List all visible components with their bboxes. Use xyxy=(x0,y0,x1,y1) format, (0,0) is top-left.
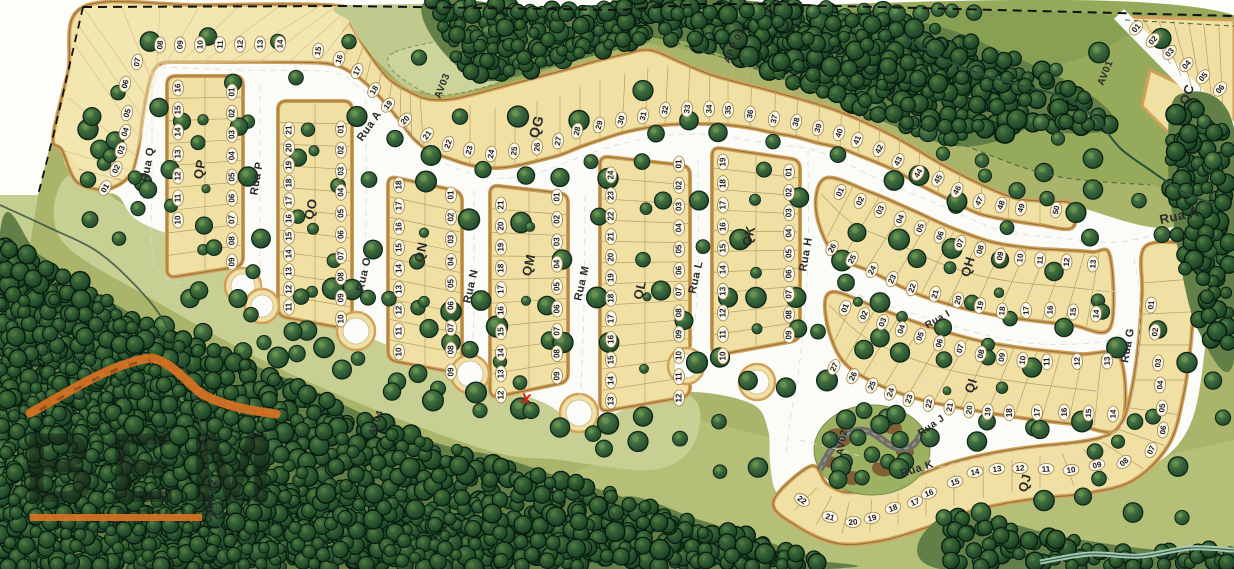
svg-text:15: 15 xyxy=(285,231,294,240)
svg-text:14: 14 xyxy=(285,249,294,258)
svg-text:01: 01 xyxy=(553,192,562,201)
svg-text:15: 15 xyxy=(607,355,616,364)
svg-text:01: 01 xyxy=(1146,300,1156,310)
svg-text:12: 12 xyxy=(1015,463,1025,473)
svg-text:10: 10 xyxy=(1018,355,1028,366)
svg-text:08: 08 xyxy=(447,345,456,354)
svg-text:17: 17 xyxy=(395,201,404,210)
svg-text:11: 11 xyxy=(216,40,225,49)
svg-text:16: 16 xyxy=(1060,407,1069,417)
svg-text:13: 13 xyxy=(1103,356,1112,366)
svg-text:16: 16 xyxy=(719,222,728,231)
svg-text:10: 10 xyxy=(1066,465,1077,475)
svg-text:09: 09 xyxy=(997,352,1007,363)
svg-text:18: 18 xyxy=(607,293,616,302)
svg-text:04: 04 xyxy=(785,228,794,237)
svg-text:14: 14 xyxy=(395,264,404,273)
svg-text:17: 17 xyxy=(1033,407,1042,417)
svg-text:15: 15 xyxy=(719,243,728,252)
svg-text:16: 16 xyxy=(174,83,183,92)
svg-text:09: 09 xyxy=(447,367,456,376)
svg-text:20: 20 xyxy=(964,404,974,414)
svg-text:05: 05 xyxy=(785,249,794,258)
svg-text:13: 13 xyxy=(285,267,294,276)
svg-text:02: 02 xyxy=(1150,327,1160,337)
svg-text:22: 22 xyxy=(607,211,616,220)
svg-text:08: 08 xyxy=(228,236,237,245)
svg-text:14: 14 xyxy=(607,376,616,385)
svg-text:02: 02 xyxy=(337,145,346,154)
svg-text:19: 19 xyxy=(719,157,728,166)
svg-text:04: 04 xyxy=(228,151,237,160)
svg-text:04: 04 xyxy=(337,187,346,196)
svg-text:36: 36 xyxy=(745,108,755,119)
svg-text:15: 15 xyxy=(1068,307,1078,317)
svg-text:02: 02 xyxy=(675,180,684,189)
svg-text:19: 19 xyxy=(607,273,616,282)
svg-text:04: 04 xyxy=(675,223,684,232)
svg-text:02: 02 xyxy=(785,187,794,196)
svg-text:01: 01 xyxy=(228,87,237,96)
svg-text:35: 35 xyxy=(724,105,733,115)
svg-text:13: 13 xyxy=(395,284,404,293)
svg-text:14: 14 xyxy=(1091,309,1101,319)
svg-text:03: 03 xyxy=(447,234,456,243)
svg-text:05: 05 xyxy=(447,279,456,288)
svg-text:19: 19 xyxy=(285,160,294,169)
svg-text:13: 13 xyxy=(992,464,1003,474)
svg-text:18: 18 xyxy=(395,180,404,189)
svg-text:08: 08 xyxy=(553,349,562,358)
svg-text:05: 05 xyxy=(337,208,346,217)
svg-text:05: 05 xyxy=(553,282,562,291)
svg-text:03: 03 xyxy=(675,202,684,211)
svg-text:10: 10 xyxy=(719,351,728,360)
svg-text:03: 03 xyxy=(337,166,346,175)
svg-text:07: 07 xyxy=(553,326,562,335)
svg-text:17: 17 xyxy=(1022,305,1031,315)
svg-text:12: 12 xyxy=(1073,356,1082,366)
svg-text:12: 12 xyxy=(395,305,404,314)
svg-text:11: 11 xyxy=(1043,357,1052,366)
svg-text:15: 15 xyxy=(1084,408,1093,418)
svg-text:06: 06 xyxy=(228,193,237,202)
svg-text:06: 06 xyxy=(447,301,456,310)
svg-text:26: 26 xyxy=(533,142,542,152)
svg-text:21: 21 xyxy=(285,125,294,134)
svg-text:03: 03 xyxy=(553,237,562,246)
svg-text:14: 14 xyxy=(276,39,285,49)
svg-text:05: 05 xyxy=(675,244,684,253)
svg-text:07: 07 xyxy=(228,215,237,224)
svg-text:25: 25 xyxy=(509,146,519,156)
svg-text:17: 17 xyxy=(719,200,728,209)
svg-text:18: 18 xyxy=(497,263,506,272)
svg-text:10: 10 xyxy=(337,314,346,323)
svg-text:09: 09 xyxy=(553,371,562,380)
svg-text:04: 04 xyxy=(553,259,562,268)
svg-text:17: 17 xyxy=(607,314,616,323)
svg-text:11: 11 xyxy=(395,326,404,335)
svg-text:09: 09 xyxy=(785,330,794,339)
svg-text:12: 12 xyxy=(1062,257,1072,267)
svg-text:12: 12 xyxy=(497,390,506,399)
svg-text:08: 08 xyxy=(675,308,684,317)
svg-text:11: 11 xyxy=(174,193,183,202)
svg-text:34: 34 xyxy=(705,104,714,114)
svg-text:10: 10 xyxy=(395,347,404,356)
svg-text:13: 13 xyxy=(497,369,506,378)
svg-text:20: 20 xyxy=(285,143,294,152)
svg-text:10: 10 xyxy=(174,215,183,224)
svg-text:18: 18 xyxy=(719,179,728,188)
svg-text:13: 13 xyxy=(256,39,265,49)
svg-text:10: 10 xyxy=(675,351,684,360)
svg-text:12: 12 xyxy=(236,39,245,49)
svg-text:19: 19 xyxy=(983,406,993,416)
svg-text:02: 02 xyxy=(228,108,237,117)
svg-text:14: 14 xyxy=(497,348,506,357)
svg-text:18: 18 xyxy=(997,306,1007,316)
svg-text:12: 12 xyxy=(675,393,684,402)
svg-text:12: 12 xyxy=(285,284,294,293)
svg-text:18: 18 xyxy=(1005,408,1014,417)
svg-text:01: 01 xyxy=(337,124,346,133)
svg-text:11: 11 xyxy=(1041,464,1051,474)
svg-text:16: 16 xyxy=(1046,305,1055,315)
svg-text:05: 05 xyxy=(1157,403,1167,413)
svg-text:09: 09 xyxy=(675,329,684,338)
svg-text:21: 21 xyxy=(497,200,506,209)
svg-text:13: 13 xyxy=(1088,259,1098,269)
svg-text:01: 01 xyxy=(675,159,684,168)
svg-text:18: 18 xyxy=(285,178,294,187)
svg-text:06: 06 xyxy=(785,269,794,278)
svg-text:21: 21 xyxy=(607,232,616,241)
svg-text:11: 11 xyxy=(719,330,728,339)
svg-text:12: 12 xyxy=(174,171,183,180)
svg-text:06: 06 xyxy=(675,265,684,274)
svg-text:07: 07 xyxy=(337,251,346,260)
svg-text:23: 23 xyxy=(607,191,616,200)
svg-text:15: 15 xyxy=(174,105,183,114)
svg-text:24: 24 xyxy=(607,170,616,179)
svg-text:09: 09 xyxy=(228,257,237,266)
svg-text:03: 03 xyxy=(785,208,794,217)
svg-text:06: 06 xyxy=(1158,424,1168,435)
svg-text:03: 03 xyxy=(1153,358,1163,368)
svg-text:09: 09 xyxy=(176,40,185,50)
svg-text:16: 16 xyxy=(395,222,404,231)
svg-text:13: 13 xyxy=(607,396,616,405)
svg-text:14: 14 xyxy=(174,127,183,136)
svg-text:11: 11 xyxy=(675,372,684,381)
svg-text:15: 15 xyxy=(497,327,506,336)
svg-text:19: 19 xyxy=(497,242,506,251)
svg-text:20: 20 xyxy=(848,517,858,527)
svg-text:20: 20 xyxy=(607,252,616,261)
svg-text:07: 07 xyxy=(447,323,456,332)
svg-text:13: 13 xyxy=(174,149,183,158)
svg-text:05: 05 xyxy=(228,172,237,181)
svg-text:15: 15 xyxy=(395,243,404,252)
svg-text:04: 04 xyxy=(1155,380,1165,390)
svg-text:07: 07 xyxy=(675,287,684,296)
svg-text:08: 08 xyxy=(156,40,165,50)
svg-text:14: 14 xyxy=(1109,409,1118,419)
svg-text:01: 01 xyxy=(447,190,456,199)
svg-text:20: 20 xyxy=(497,221,506,230)
svg-text:17: 17 xyxy=(497,284,506,293)
svg-text:17: 17 xyxy=(285,196,294,205)
svg-text:10: 10 xyxy=(1015,253,1025,263)
svg-text:11: 11 xyxy=(1035,255,1045,265)
svg-text:06: 06 xyxy=(337,230,346,239)
svg-text:16: 16 xyxy=(607,334,616,343)
svg-text:09: 09 xyxy=(337,293,346,302)
svg-text:02: 02 xyxy=(447,212,456,221)
svg-text:16: 16 xyxy=(285,214,294,223)
svg-text:12: 12 xyxy=(719,308,728,317)
svg-text:10: 10 xyxy=(196,40,205,50)
svg-text:07: 07 xyxy=(785,289,794,298)
svg-text:01: 01 xyxy=(785,167,794,176)
svg-text:03: 03 xyxy=(228,130,237,139)
svg-text:08: 08 xyxy=(785,310,794,319)
svg-text:06: 06 xyxy=(553,304,562,313)
svg-text:02: 02 xyxy=(553,214,562,223)
svg-text:14: 14 xyxy=(719,265,728,274)
svg-text:08: 08 xyxy=(337,272,346,281)
svg-text:33: 33 xyxy=(682,104,692,114)
svg-text:11: 11 xyxy=(285,302,294,311)
svg-text:13: 13 xyxy=(719,286,728,295)
svg-text:16: 16 xyxy=(497,306,506,315)
svg-text:04: 04 xyxy=(447,256,456,265)
